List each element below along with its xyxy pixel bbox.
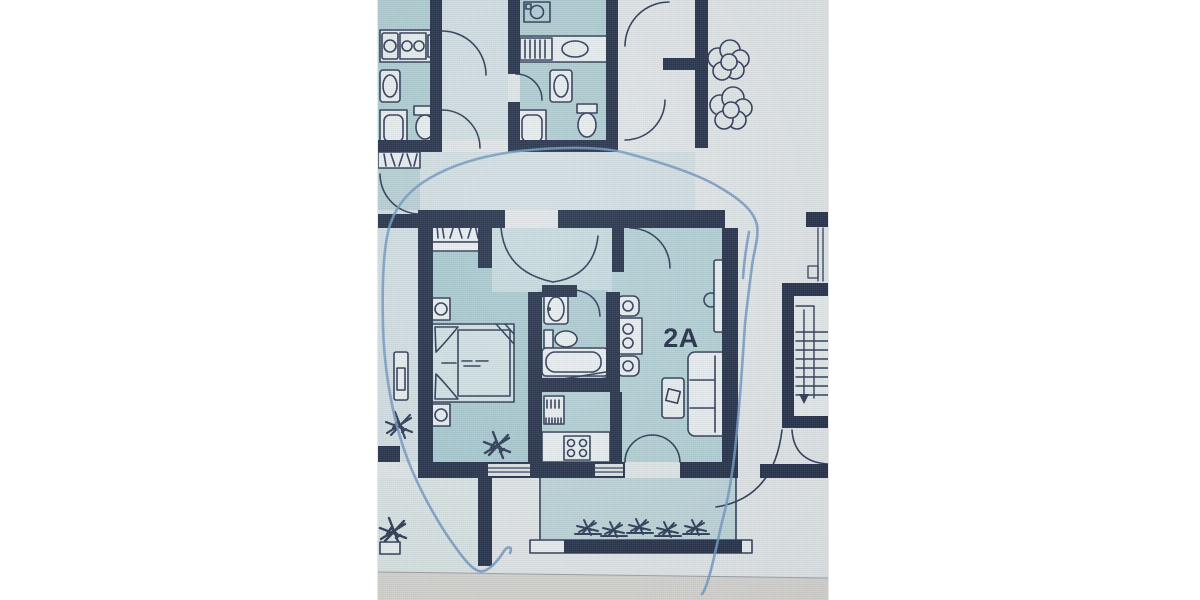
toilet (544, 330, 577, 348)
counter-appliances (380, 30, 436, 62)
unit-label: 2A (663, 323, 699, 353)
wall (430, 0, 442, 152)
wall (695, 0, 708, 148)
partition-wall (528, 292, 542, 462)
dining-chair (617, 356, 639, 376)
stairwell-wall (782, 283, 828, 296)
window (488, 464, 530, 476)
wash-basin (550, 70, 572, 102)
wall (378, 446, 400, 462)
wall (508, 0, 520, 74)
floorplan-photo: 2A (378, 0, 828, 600)
counter-appliances (518, 36, 608, 62)
window (595, 464, 623, 476)
kitchen-sink-unit (544, 396, 564, 424)
upper-corridor-floor (442, 0, 508, 140)
wardrobe (378, 152, 420, 168)
wall (478, 478, 492, 566)
double-bed (432, 324, 514, 402)
partition-wall (612, 228, 624, 272)
wall (806, 212, 828, 227)
nightstand (432, 298, 450, 320)
dining-chair (617, 296, 639, 316)
radiator (394, 352, 408, 400)
partition-wall (610, 392, 622, 462)
stairwell-wall (782, 416, 828, 428)
stairwell-floor (794, 296, 828, 416)
lower-room-wall-corner (380, 542, 400, 554)
unit-2a-top-wall (558, 210, 725, 228)
wall (760, 464, 828, 478)
kitchen-counter-stove (542, 432, 610, 462)
stairwell-wall (782, 283, 794, 428)
wash-basin (380, 70, 400, 102)
unit-2a-bottom-wall (680, 462, 738, 478)
toilet (577, 104, 597, 137)
wall (663, 58, 698, 70)
floorplan-svg: 2A (378, 0, 828, 600)
wash-basin (544, 294, 568, 324)
partition-wall (542, 285, 577, 297)
unit-2a-left-wall (418, 228, 433, 478)
bathtub (542, 348, 608, 376)
partition-wall (528, 378, 620, 392)
unit-2a-top-wall (418, 210, 505, 228)
coffee-table (662, 378, 684, 418)
wall (606, 0, 618, 152)
partition-wall (478, 228, 492, 268)
wall (378, 140, 442, 152)
nightstand (432, 404, 450, 426)
page-background: 2A (0, 0, 1200, 600)
partition-wall (606, 292, 620, 392)
